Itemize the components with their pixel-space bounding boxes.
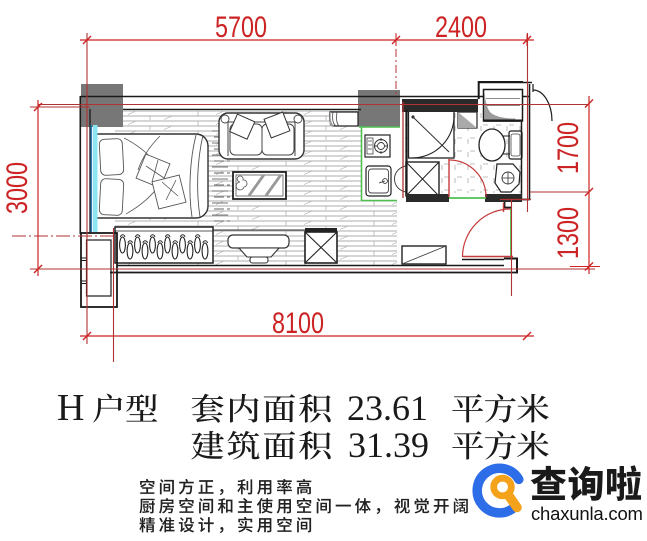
- svg-text:1700: 1700: [551, 122, 584, 174]
- svg-text:1300: 1300: [551, 207, 584, 259]
- svg-text:31.39: 31.39: [348, 425, 429, 465]
- svg-text:3000: 3000: [0, 162, 33, 214]
- svg-text:5700: 5700: [215, 10, 267, 43]
- svg-text:chaxunla.com: chaxunla.com: [531, 503, 643, 524]
- svg-text:23.61: 23.61: [347, 388, 428, 428]
- svg-text:2400: 2400: [435, 10, 487, 43]
- svg-text:8100: 8100: [272, 306, 324, 339]
- svg-text:H: H: [57, 387, 84, 429]
